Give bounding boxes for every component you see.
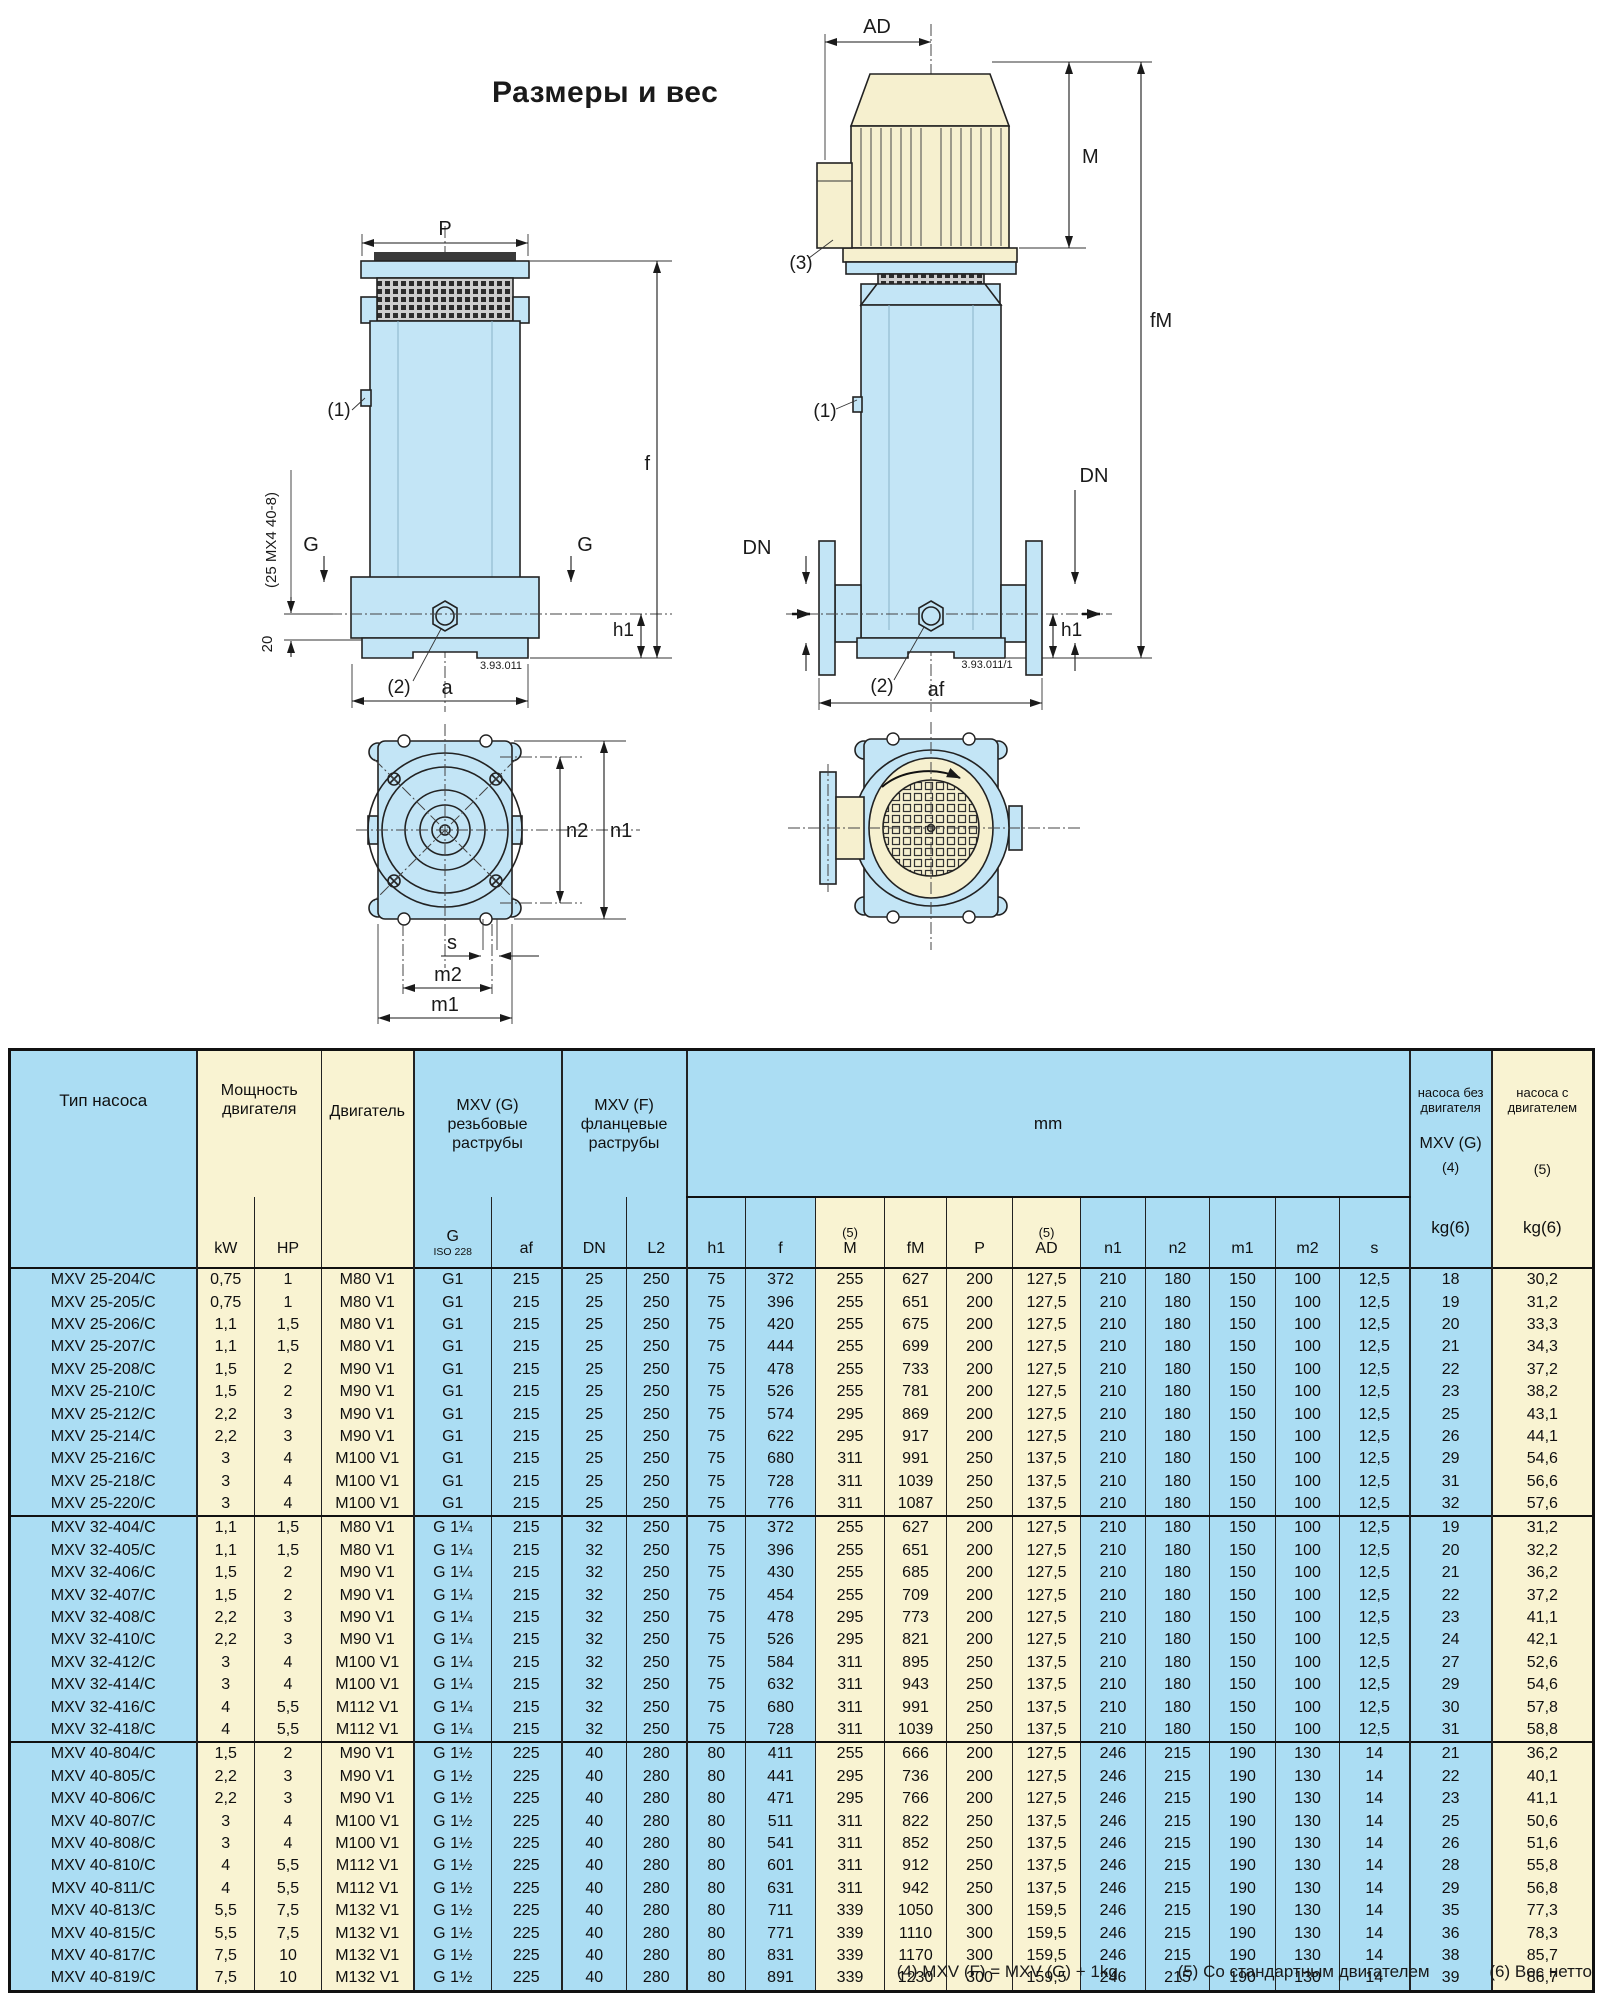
table-cell: 250 <box>947 1652 1013 1674</box>
table-cell: M100 V1 <box>322 1652 414 1674</box>
table-cell: 75 <box>687 1359 746 1381</box>
note-mx4: (25 MX4 40-8) <box>263 492 280 588</box>
table-cell: M80 V1 <box>322 1336 414 1358</box>
table-cell: 200 <box>947 1314 1013 1336</box>
table-cell: 295 <box>816 1766 885 1788</box>
table-cell: 130 <box>1276 1855 1340 1877</box>
table-cell: 215 <box>1146 1833 1210 1855</box>
table-cell: 250 <box>947 1855 1013 1877</box>
table-cell: 100 <box>1276 1516 1340 1539</box>
table-cell: 246 <box>1081 1922 1146 1944</box>
table-cell: 200 <box>947 1742 1013 1765</box>
table-cell: 200 <box>947 1788 1013 1810</box>
table-cell: 4 <box>197 1855 255 1877</box>
col-header-hp: HP <box>255 1197 322 1268</box>
table-cell: 339 <box>816 1900 885 1922</box>
table-cell: 75 <box>687 1540 746 1562</box>
table-cell: 32 <box>562 1696 627 1718</box>
table-cell: 14 <box>1340 1878 1410 1900</box>
table-cell: 190 <box>1210 1766 1276 1788</box>
table-cell: 33,3 <box>1492 1314 1594 1336</box>
table-cell: 28 <box>1410 1855 1492 1877</box>
table-cell: 127,5 <box>1013 1584 1081 1606</box>
table-cell: 255 <box>816 1516 885 1539</box>
table-cell: 27 <box>1410 1652 1492 1674</box>
table-row: MXV 32-407/C1,52M90 V1G 1¼21532250754542… <box>10 1584 1594 1606</box>
table-cell: MXV 25-212/C <box>10 1403 197 1425</box>
drawing-number: 3.93.011/1 <box>961 659 1012 671</box>
table-cell: 210 <box>1081 1607 1146 1629</box>
table-cell: 396 <box>746 1540 816 1562</box>
table-cell: 75 <box>687 1403 746 1425</box>
table-cell: 250 <box>627 1471 687 1493</box>
table-cell: 4 <box>197 1878 255 1900</box>
table-cell: 210 <box>1081 1629 1146 1651</box>
table-row: MXV 40-815/C5,57,5M132 V1G 1½22540280807… <box>10 1922 1594 1944</box>
header-line: ISO 228 <box>415 1246 492 1258</box>
table-cell: 75 <box>687 1516 746 1539</box>
table-cell: 127,5 <box>1013 1540 1081 1562</box>
table-cell: 1 <box>255 1291 322 1313</box>
table-cell: 225 <box>492 1766 562 1788</box>
table-cell: 200 <box>947 1629 1013 1651</box>
terminal-box <box>817 163 852 248</box>
table-cell: 200 <box>947 1426 1013 1448</box>
footnotes: (4) MXV (F) = MXV (G) + 1kg (5) Со станд… <box>8 1962 1592 1982</box>
table-cell: 822 <box>885 1810 947 1832</box>
table-cell: 42,1 <box>1492 1629 1594 1651</box>
table-cell: 5,5 <box>255 1878 322 1900</box>
table-cell: MXV 25-210/C <box>10 1381 197 1403</box>
table-cell: 627 <box>885 1268 947 1291</box>
table-cell: 1,5 <box>255 1314 322 1336</box>
dim-n2-label: n2 <box>566 820 588 842</box>
table-cell: 100 <box>1276 1540 1340 1562</box>
header-line: (4) <box>1442 1159 1459 1175</box>
table-cell: M112 V1 <box>322 1878 414 1900</box>
table-cell: 75 <box>687 1291 746 1313</box>
table-cell: 150 <box>1210 1314 1276 1336</box>
table-cell: 0,75 <box>197 1268 255 1291</box>
table-cell: 210 <box>1081 1562 1146 1584</box>
col-header-dn: DN <box>562 1197 627 1268</box>
table-cell: 4 <box>197 1719 255 1742</box>
table-cell: 40 <box>562 1878 627 1900</box>
header-line: резьбовые <box>415 1115 561 1134</box>
table-cell: 100 <box>1276 1629 1340 1651</box>
table-cell: 75 <box>687 1562 746 1584</box>
table-cell: 54,6 <box>1492 1674 1594 1696</box>
threaded-pump-side-view: P (1) G G f h1 a (2) 3.93.011 <box>259 218 672 712</box>
table-cell: MXV 40-813/C <box>10 1900 197 1922</box>
col-header-weight-with-motor: насоса с двигателем (5) kg(6) <box>1492 1050 1594 1269</box>
table-cell: 75 <box>687 1696 746 1718</box>
table-row: MXV 40-810/C45,5M112 V1G 1½2254028080601… <box>10 1855 1594 1877</box>
table-cell: 3 <box>197 1833 255 1855</box>
table-cell: 4 <box>255 1652 322 1674</box>
table-cell: 372 <box>746 1268 816 1291</box>
table-cell: 478 <box>746 1359 816 1381</box>
table-cell: 25 <box>562 1471 627 1493</box>
table-cell: 75 <box>687 1719 746 1742</box>
table-cell: MXV 40-815/C <box>10 1922 197 1944</box>
table-cell: MXV 32-412/C <box>10 1652 197 1674</box>
dim-g-right-label: G <box>577 534 593 556</box>
table-cell: 250 <box>627 1674 687 1696</box>
col-header-m1: m1 <box>1210 1197 1276 1268</box>
table-cell: 295 <box>816 1607 885 1629</box>
table-cell: 1,1 <box>197 1336 255 1358</box>
table-cell: 130 <box>1276 1878 1340 1900</box>
table-cell: 32,2 <box>1492 1540 1594 1562</box>
table-cell: 50,6 <box>1492 1810 1594 1832</box>
dim-m-label: M <box>1082 146 1099 168</box>
table-cell: 250 <box>627 1291 687 1313</box>
table-cell: 180 <box>1146 1493 1210 1516</box>
table-cell: MXV 25-207/C <box>10 1336 197 1358</box>
table-cell: 444 <box>746 1336 816 1358</box>
dim-dn-right-label: DN <box>1080 465 1109 487</box>
table-cell: 130 <box>1276 1766 1340 1788</box>
table-cell: 180 <box>1146 1674 1210 1696</box>
table-cell: 75 <box>687 1493 746 1516</box>
table-cell: 12,5 <box>1340 1607 1410 1629</box>
table-cell: 895 <box>885 1652 947 1674</box>
table-cell: 100 <box>1276 1403 1340 1425</box>
table-cell: MXV 32-406/C <box>10 1562 197 1584</box>
footnote-5: (5) Со стандартным двигателем <box>1178 1962 1430 1981</box>
col-header-mxv-f: MXV (F) фланцевые раструбы <box>562 1050 687 1198</box>
table-cell: M100 V1 <box>322 1493 414 1516</box>
table-cell: 26 <box>1410 1833 1492 1855</box>
callout-2: (2) <box>387 677 410 698</box>
header-line: (5) <box>816 1226 884 1240</box>
table-cell: 574 <box>746 1403 816 1425</box>
table-cell: 75 <box>687 1607 746 1629</box>
table-cell: 29 <box>1410 1878 1492 1900</box>
callout-3: (3) <box>789 253 812 274</box>
table-cell: 80 <box>687 1788 746 1810</box>
col-header-weight-without-motor: насоса без двигателя MXV (G) (4) kg(6) <box>1410 1050 1492 1269</box>
table-cell: 180 <box>1146 1268 1210 1291</box>
table-cell: 2,2 <box>197 1629 255 1651</box>
table-cell: 250 <box>627 1562 687 1584</box>
table-cell: 100 <box>1276 1584 1340 1606</box>
table-cell: 2 <box>255 1381 322 1403</box>
table-cell: 210 <box>1081 1268 1146 1291</box>
table-cell: 215 <box>1146 1788 1210 1810</box>
table-cell: 3 <box>197 1493 255 1516</box>
table-cell: 32 <box>562 1584 627 1606</box>
table-cell: 12,5 <box>1340 1403 1410 1425</box>
table-cell: 311 <box>816 1696 885 1718</box>
dim-m2-label: m2 <box>434 964 462 986</box>
flanged-pump-side-view: AD (3) M fM (1) <box>743 16 1173 712</box>
table-cell: 200 <box>947 1381 1013 1403</box>
table-cell: G 1½ <box>414 1833 492 1855</box>
header-line: kg(6) <box>1431 1218 1470 1237</box>
table-cell: 200 <box>947 1607 1013 1629</box>
table-cell: 32 <box>562 1652 627 1674</box>
table-cell: 12,5 <box>1340 1426 1410 1448</box>
table-cell: M90 V1 <box>322 1607 414 1629</box>
col-header-pump-type: Тип насоса <box>10 1050 197 1269</box>
table-cell: 4 <box>255 1674 322 1696</box>
table-cell: 3 <box>255 1607 322 1629</box>
table-cell: 250 <box>627 1540 687 1562</box>
table-cell: 942 <box>885 1878 947 1900</box>
table-cell: 18 <box>1410 1268 1492 1291</box>
table-cell: 127,5 <box>1013 1314 1081 1336</box>
table-cell: 280 <box>627 1810 687 1832</box>
table-cell: 215 <box>492 1291 562 1313</box>
table-cell: 75 <box>687 1426 746 1448</box>
table-cell: 685 <box>885 1562 947 1584</box>
table-cell: 100 <box>1276 1652 1340 1674</box>
table-cell: 80 <box>687 1922 746 1944</box>
table-cell: 200 <box>947 1291 1013 1313</box>
table-cell: M132 V1 <box>322 1922 414 1944</box>
table-cell: 37,2 <box>1492 1359 1594 1381</box>
header-line: Мощность <box>198 1081 322 1100</box>
table-cell: 246 <box>1081 1855 1146 1877</box>
table-cell: 250 <box>947 1878 1013 1900</box>
table-cell: M132 V1 <box>322 1900 414 1922</box>
table-cell: 75 <box>687 1381 746 1403</box>
table-cell: 23 <box>1410 1788 1492 1810</box>
table-cell: M90 V1 <box>322 1403 414 1425</box>
table-cell: G 1¼ <box>414 1719 492 1742</box>
table-cell: 180 <box>1146 1448 1210 1470</box>
table-cell: M90 V1 <box>322 1381 414 1403</box>
table-cell: 21 <box>1410 1742 1492 1765</box>
table-cell: 1,1 <box>197 1314 255 1336</box>
table-cell: 80 <box>687 1878 746 1900</box>
table-cell: 215 <box>492 1719 562 1742</box>
header-line: kg(6) <box>1523 1218 1562 1237</box>
col-header-l2: L2 <box>627 1197 687 1268</box>
table-cell: 250 <box>627 1403 687 1425</box>
table-cell: 180 <box>1146 1629 1210 1651</box>
table-cell: 255 <box>816 1291 885 1313</box>
table-cell: 215 <box>492 1696 562 1718</box>
table-cell: 12,5 <box>1340 1652 1410 1674</box>
table-cell: 34,3 <box>1492 1336 1594 1358</box>
table-cell: 1,5 <box>255 1336 322 1358</box>
table-cell: MXV 32-408/C <box>10 1607 197 1629</box>
table-cell: 215 <box>492 1359 562 1381</box>
table-cell: 20 <box>1410 1540 1492 1562</box>
table-cell: 1,5 <box>197 1584 255 1606</box>
table-cell: MXV 32-414/C <box>10 1674 197 1696</box>
col-header-h1: h1 <box>687 1197 746 1268</box>
table-cell: 25 <box>562 1426 627 1448</box>
header-line: MXV (G) <box>415 1096 561 1115</box>
table-cell: 210 <box>1081 1674 1146 1696</box>
table-cell: M100 V1 <box>322 1833 414 1855</box>
table-row: MXV 40-808/C34M100 V1G 1½225402808054131… <box>10 1833 1594 1855</box>
table-cell: 246 <box>1081 1810 1146 1832</box>
table-cell: 246 <box>1081 1742 1146 1765</box>
header-line: G <box>415 1228 492 1246</box>
pump-series-group: MXV 25-204/C0,751M80 V1G1215252507537225… <box>10 1268 1594 1516</box>
table-cell: 1039 <box>885 1471 947 1493</box>
table-cell: 51,6 <box>1492 1833 1594 1855</box>
table-cell: M112 V1 <box>322 1696 414 1718</box>
table-cell: 1,1 <box>197 1516 255 1539</box>
table-cell: 250 <box>947 1674 1013 1696</box>
table-cell: M100 V1 <box>322 1471 414 1493</box>
table-cell: 3 <box>197 1471 255 1493</box>
table-cell: 180 <box>1146 1381 1210 1403</box>
table-cell: 4 <box>197 1696 255 1718</box>
table-cell: 255 <box>816 1336 885 1358</box>
col-header-ad: (5) AD <box>1013 1197 1081 1268</box>
table-cell: 100 <box>1276 1359 1340 1381</box>
table-cell: 255 <box>816 1742 885 1765</box>
col-header-n1: n1 <box>1081 1197 1146 1268</box>
header-line: насоса с <box>1516 1085 1568 1100</box>
table-cell: 150 <box>1210 1291 1276 1313</box>
table-cell: 78,3 <box>1492 1922 1594 1944</box>
table-cell: MXV 40-811/C <box>10 1878 197 1900</box>
header-line: MXV (F) <box>563 1096 686 1115</box>
dim-20-label: 20 <box>259 636 276 653</box>
table-cell: 295 <box>816 1403 885 1425</box>
table-cell: 137,5 <box>1013 1855 1081 1877</box>
table-cell: MXV 32-405/C <box>10 1540 197 1562</box>
table-cell: 12,5 <box>1340 1381 1410 1403</box>
table-cell: 250 <box>627 1448 687 1470</box>
table-cell: 280 <box>627 1788 687 1810</box>
table-cell: G1 <box>414 1448 492 1470</box>
table-cell: 736 <box>885 1766 947 1788</box>
table-cell: G1 <box>414 1359 492 1381</box>
table-cell: 25 <box>562 1359 627 1381</box>
table-cell: M90 V1 <box>322 1426 414 1448</box>
table-cell: 200 <box>947 1403 1013 1425</box>
table-cell: 210 <box>1081 1426 1146 1448</box>
table-cell: 127,5 <box>1013 1426 1081 1448</box>
header-line: двигателем <box>1508 1100 1578 1115</box>
table-cell: 4 <box>255 1833 322 1855</box>
table-cell: 2 <box>255 1359 322 1381</box>
table-cell: G 1½ <box>414 1766 492 1788</box>
table-row: MXV 32-410/C2,23M90 V1G 1¼21532250755262… <box>10 1629 1594 1651</box>
table-cell: 255 <box>816 1584 885 1606</box>
table-cell: 215 <box>1146 1766 1210 1788</box>
col-header-mm: mm <box>687 1050 1410 1198</box>
table-cell: 35 <box>1410 1900 1492 1922</box>
table-cell: 150 <box>1210 1471 1276 1493</box>
callout-1: (1) <box>813 401 836 422</box>
table-cell: 215 <box>492 1268 562 1291</box>
col-header-f: f <box>746 1197 816 1268</box>
table-cell: 255 <box>816 1381 885 1403</box>
table-cell: 25 <box>562 1448 627 1470</box>
table-cell: MXV 40-807/C <box>10 1810 197 1832</box>
table-cell: 22 <box>1410 1766 1492 1788</box>
table-cell: MXV 25-220/C <box>10 1493 197 1516</box>
table-cell: 215 <box>492 1607 562 1629</box>
table-cell: 37,2 <box>1492 1584 1594 1606</box>
dimension-drawings: .ol{stroke:#222;stroke-width:1.6;fill:no… <box>0 0 1600 1048</box>
table-cell: 100 <box>1276 1268 1340 1291</box>
table-cell: 32 <box>1410 1493 1492 1516</box>
table-cell: 14 <box>1340 1833 1410 1855</box>
table-row: MXV 40-804/C1,52M90 V1G 1½22540280804112… <box>10 1742 1594 1765</box>
table-cell: 24 <box>1410 1629 1492 1651</box>
table-cell: 225 <box>492 1900 562 1922</box>
dim-af-label: af <box>928 679 945 701</box>
table-cell: 210 <box>1081 1652 1146 1674</box>
col-header-m: (5) M <box>816 1197 885 1268</box>
table-cell: 250 <box>627 1359 687 1381</box>
table-cell: M90 V1 <box>322 1584 414 1606</box>
table-cell: 711 <box>746 1900 816 1922</box>
table-cell: 180 <box>1146 1314 1210 1336</box>
table-cell: 250 <box>947 1493 1013 1516</box>
table-cell: MXV 40-810/C <box>10 1855 197 1877</box>
table-cell: 215 <box>492 1381 562 1403</box>
table-cell: 225 <box>492 1788 562 1810</box>
table-cell: M90 V1 <box>322 1766 414 1788</box>
table-cell: 3 <box>255 1629 322 1651</box>
table-cell: 25 <box>1410 1810 1492 1832</box>
table-cell: 80 <box>687 1810 746 1832</box>
dimension-table: Тип насоса Мощность двигателя Двигатель … <box>8 1048 1595 1993</box>
coupling-guard <box>377 278 513 321</box>
table-cell: 250 <box>627 1426 687 1448</box>
table-cell: 246 <box>1081 1766 1146 1788</box>
table-cell: 250 <box>627 1516 687 1539</box>
table-cell: 5,5 <box>197 1900 255 1922</box>
table-cell: 215 <box>1146 1878 1210 1900</box>
table-cell: 150 <box>1210 1403 1276 1425</box>
table-cell: MXV 25-206/C <box>10 1314 197 1336</box>
table-cell: 180 <box>1146 1696 1210 1718</box>
table-cell: 12,5 <box>1340 1696 1410 1718</box>
table-cell: 1,5 <box>197 1562 255 1584</box>
table-cell: 200 <box>947 1540 1013 1562</box>
table-cell: M100 V1 <box>322 1448 414 1470</box>
table-cell: 21 <box>1410 1562 1492 1584</box>
table-cell: 5,5 <box>255 1719 322 1742</box>
table-cell: MXV 40-805/C <box>10 1766 197 1788</box>
pump-series-group: MXV 40-804/C1,52M90 V1G 1½22540280804112… <box>10 1742 1594 1991</box>
table-cell: 40,1 <box>1492 1766 1594 1788</box>
table-cell: 699 <box>885 1336 947 1358</box>
dim-a-label: a <box>441 677 453 699</box>
table-row: MXV 32-414/C34M100 V1G 1¼215322507563231… <box>10 1674 1594 1696</box>
table-cell: 36,2 <box>1492 1562 1594 1584</box>
table-cell: 311 <box>816 1674 885 1696</box>
table-cell: 12,5 <box>1340 1562 1410 1584</box>
table-cell: 127,5 <box>1013 1336 1081 1358</box>
flange-left <box>819 541 835 675</box>
table-cell: MXV 32-410/C <box>10 1629 197 1651</box>
header-line: (5) <box>1013 1226 1080 1240</box>
table-cell: 5,5 <box>197 1922 255 1944</box>
table-cell: M90 V1 <box>322 1788 414 1810</box>
table-cell: 215 <box>492 1652 562 1674</box>
table-cell: 127,5 <box>1013 1629 1081 1651</box>
table-cell: 150 <box>1210 1674 1276 1696</box>
table-cell: 14 <box>1340 1766 1410 1788</box>
table-cell: 127,5 <box>1013 1788 1081 1810</box>
table-cell: 180 <box>1146 1471 1210 1493</box>
table-cell: 1,5 <box>197 1359 255 1381</box>
